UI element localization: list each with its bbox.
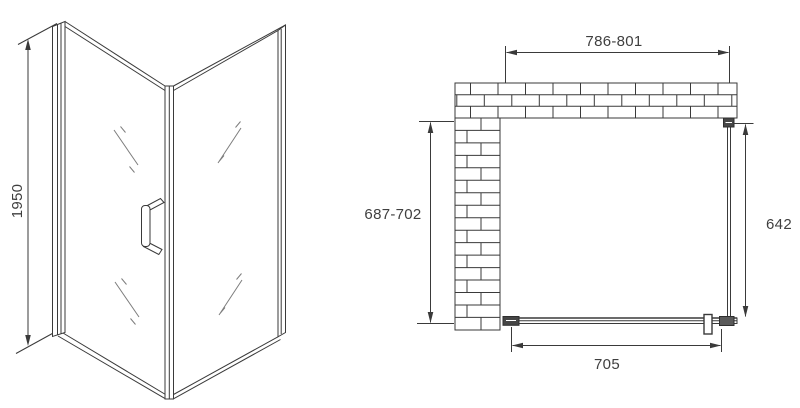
plan-view <box>417 46 754 352</box>
arrowhead-right-icon <box>718 50 729 56</box>
arrowhead-left-icon <box>512 343 523 349</box>
side-panel-line <box>728 127 731 319</box>
corner-bracket <box>720 317 735 326</box>
arrowhead-left-icon <box>506 50 517 56</box>
arrowhead-down-icon <box>25 335 31 346</box>
wall-depth-label: 687-702 <box>364 206 421 223</box>
brick-wall-left <box>455 118 500 330</box>
door-handle-plan <box>704 315 712 335</box>
arrowhead-down-icon <box>428 312 434 323</box>
shower-enclosure-technical-drawing: 1950 <box>0 0 800 408</box>
dimension-786-801 <box>506 46 730 83</box>
arrowhead-up-icon <box>743 124 749 135</box>
arrowhead-right-icon <box>710 343 721 349</box>
opening-width-label: 786-801 <box>585 33 642 50</box>
front-view <box>16 22 286 400</box>
door-handle <box>142 199 165 255</box>
corner-post <box>165 86 174 399</box>
wall-mount-bracket <box>724 118 735 127</box>
drawing-canvas: 1950 <box>0 0 800 408</box>
top-frame-edges <box>65 22 286 91</box>
extension-line <box>18 24 57 45</box>
glass-reflection-marks <box>114 122 242 325</box>
wall-profile-right <box>278 25 286 337</box>
extension-line <box>16 332 56 354</box>
arrowhead-down-icon <box>743 306 749 317</box>
dimension-687-702 <box>417 122 454 324</box>
brick-wall-top <box>455 83 737 118</box>
wall-profile-left <box>53 22 66 337</box>
door-width-label: 705 <box>594 356 620 373</box>
side-panel-label: 642 <box>766 216 792 233</box>
hinge-bracket <box>503 317 519 326</box>
dimension-705 <box>512 327 722 352</box>
arrowhead-up-icon <box>428 122 434 133</box>
door-panel-line <box>504 318 737 324</box>
dimension-642 <box>733 124 754 318</box>
height-dimension-label: 1950 <box>9 184 26 219</box>
